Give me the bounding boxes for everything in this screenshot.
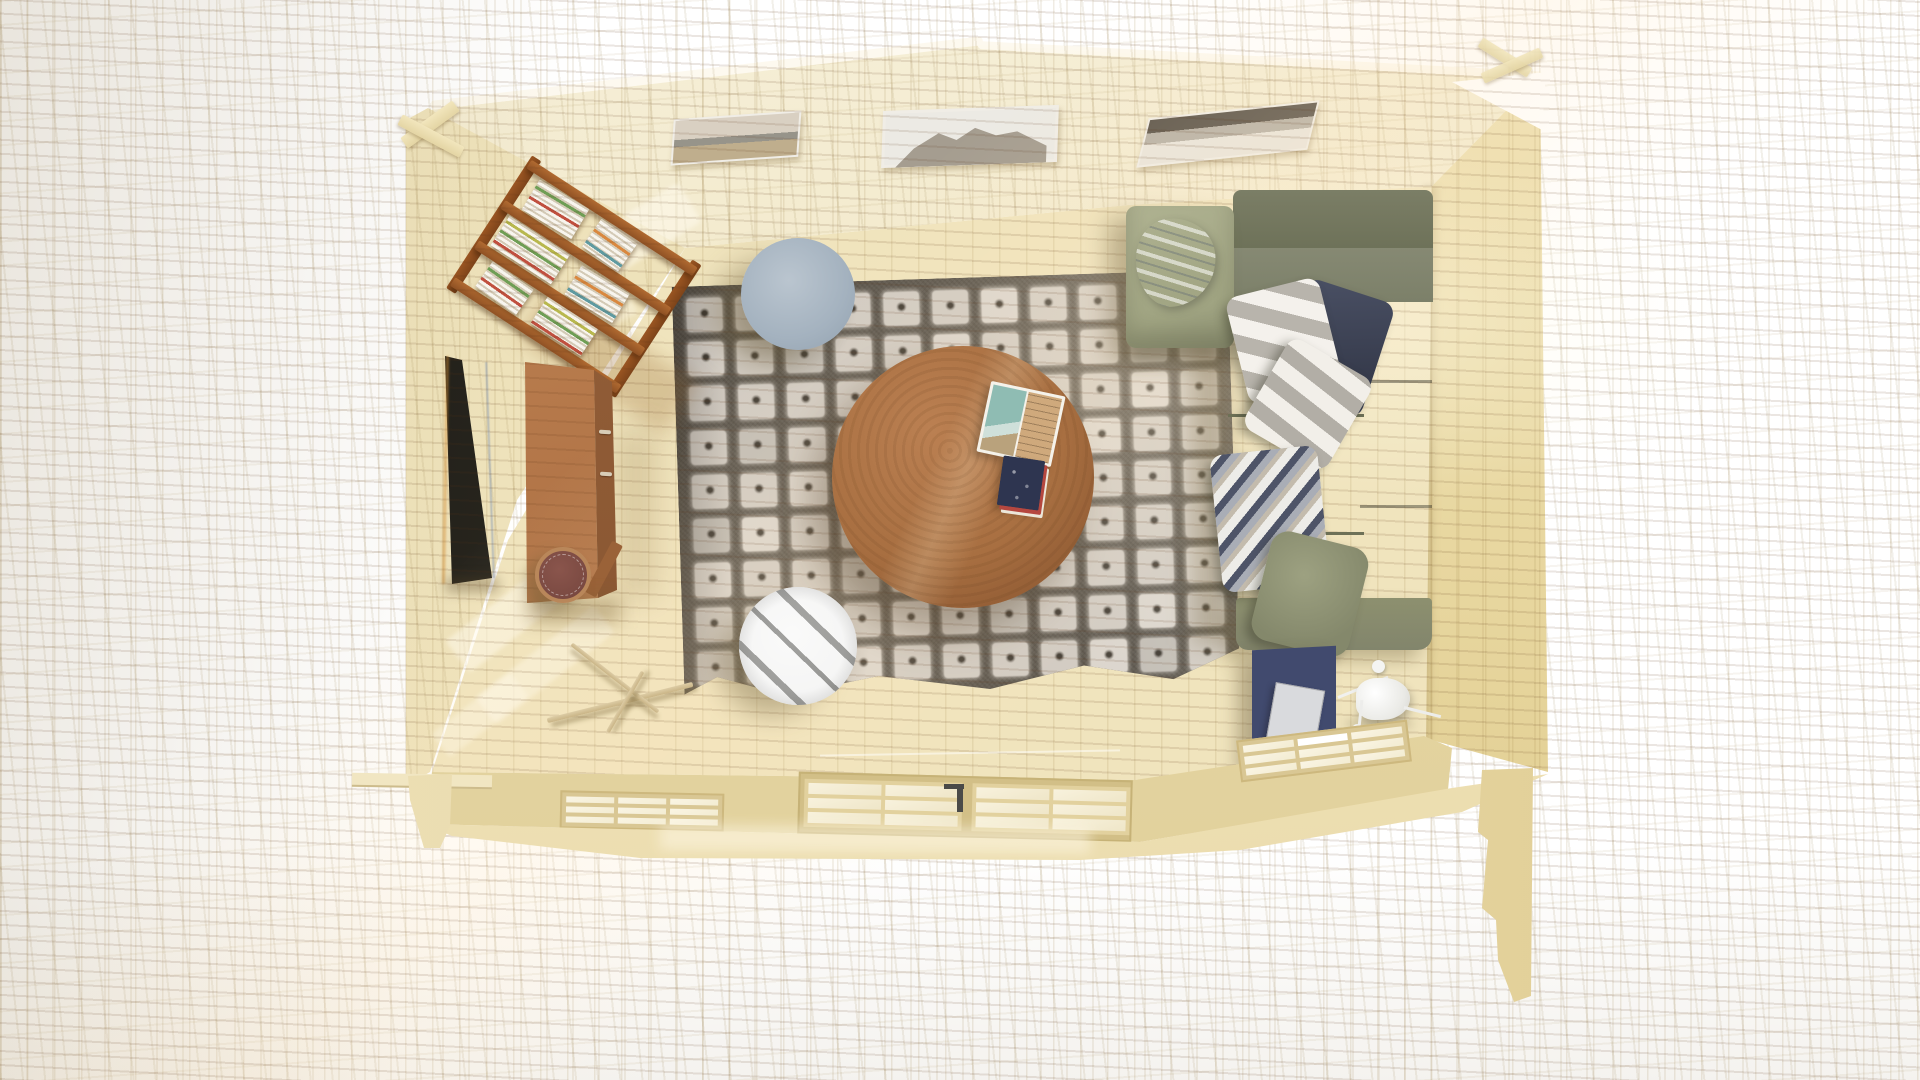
pane (566, 816, 614, 823)
desk-drawer-handle (599, 430, 611, 435)
scene-canvas (0, 0, 1920, 1080)
desk-floor-shadow (528, 598, 620, 622)
pouf-blue-gray (741, 238, 855, 350)
pane (976, 802, 1049, 815)
small-book-stack (997, 455, 1046, 510)
pane (808, 783, 881, 796)
pane (1300, 756, 1351, 769)
round-coffee-table (832, 346, 1094, 608)
table-wood-grain (832, 346, 1094, 608)
pane (670, 799, 718, 806)
desk-drawer-handle (600, 472, 612, 477)
open-magazine (976, 381, 1065, 467)
pane (566, 796, 614, 803)
round-stool (535, 547, 591, 603)
pane (885, 800, 958, 813)
pane (618, 798, 666, 805)
pane (566, 806, 614, 813)
sofa-top-backrest (1233, 190, 1433, 252)
pane (618, 817, 666, 824)
pane (808, 812, 881, 825)
pane (976, 787, 1049, 800)
pane (885, 814, 958, 827)
pouf-edge-shading (739, 587, 857, 705)
stool-stitching (542, 554, 584, 596)
pane (670, 809, 718, 816)
floor-lamp-joint (1372, 660, 1385, 673)
apron-sun-highlight (660, 824, 1090, 854)
pane (1053, 789, 1126, 802)
door-leaf (803, 779, 962, 831)
pouf-white (739, 587, 857, 705)
pane (618, 807, 666, 814)
pane (808, 798, 881, 811)
pane (1246, 762, 1297, 775)
pane (1053, 804, 1126, 817)
pane (1354, 749, 1405, 762)
door-handle (957, 786, 963, 812)
